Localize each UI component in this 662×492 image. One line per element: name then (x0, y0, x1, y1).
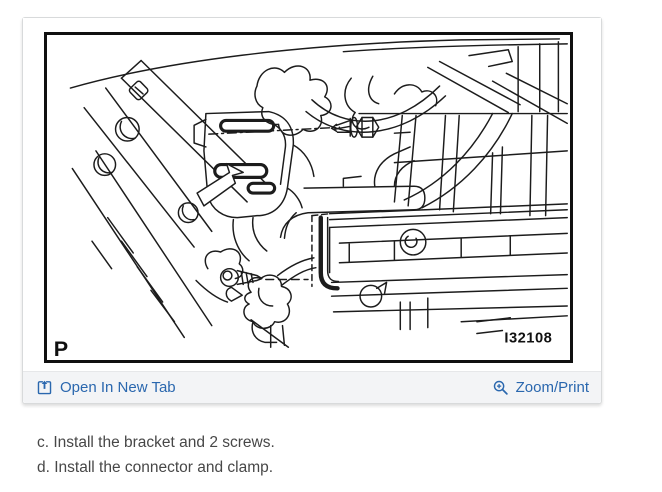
open-in-new-tab-icon (36, 379, 53, 396)
figure-part-letter: P (54, 336, 68, 360)
page: P I32108 Open In New Tab Zoom/Print (0, 0, 662, 492)
zoom-plus-icon (492, 379, 509, 396)
viewer-toolbar: Open In New Tab Zoom/Print (23, 371, 601, 403)
instruction-step-d: d. Install the connector and clamp. (37, 455, 275, 480)
figure-viewer-card: P I32108 Open In New Tab Zoom/Print (22, 17, 602, 404)
open-in-new-tab-label: Open In New Tab (60, 379, 176, 396)
technical-diagram: P I32108 (44, 32, 573, 363)
instruction-step-c: c. Install the bracket and 2 screws. (37, 430, 275, 455)
figure-id-label: I32108 (504, 330, 552, 346)
zoom-print-link[interactable]: Zoom/Print (492, 379, 589, 396)
engine-bay-line-drawing: P I32108 (47, 35, 570, 360)
instruction-list: c. Install the bracket and 2 screws. d. … (37, 430, 275, 480)
image-area: P I32108 (23, 18, 601, 371)
open-in-new-tab-link[interactable]: Open In New Tab (36, 379, 176, 396)
zoom-print-label: Zoom/Print (516, 379, 589, 396)
